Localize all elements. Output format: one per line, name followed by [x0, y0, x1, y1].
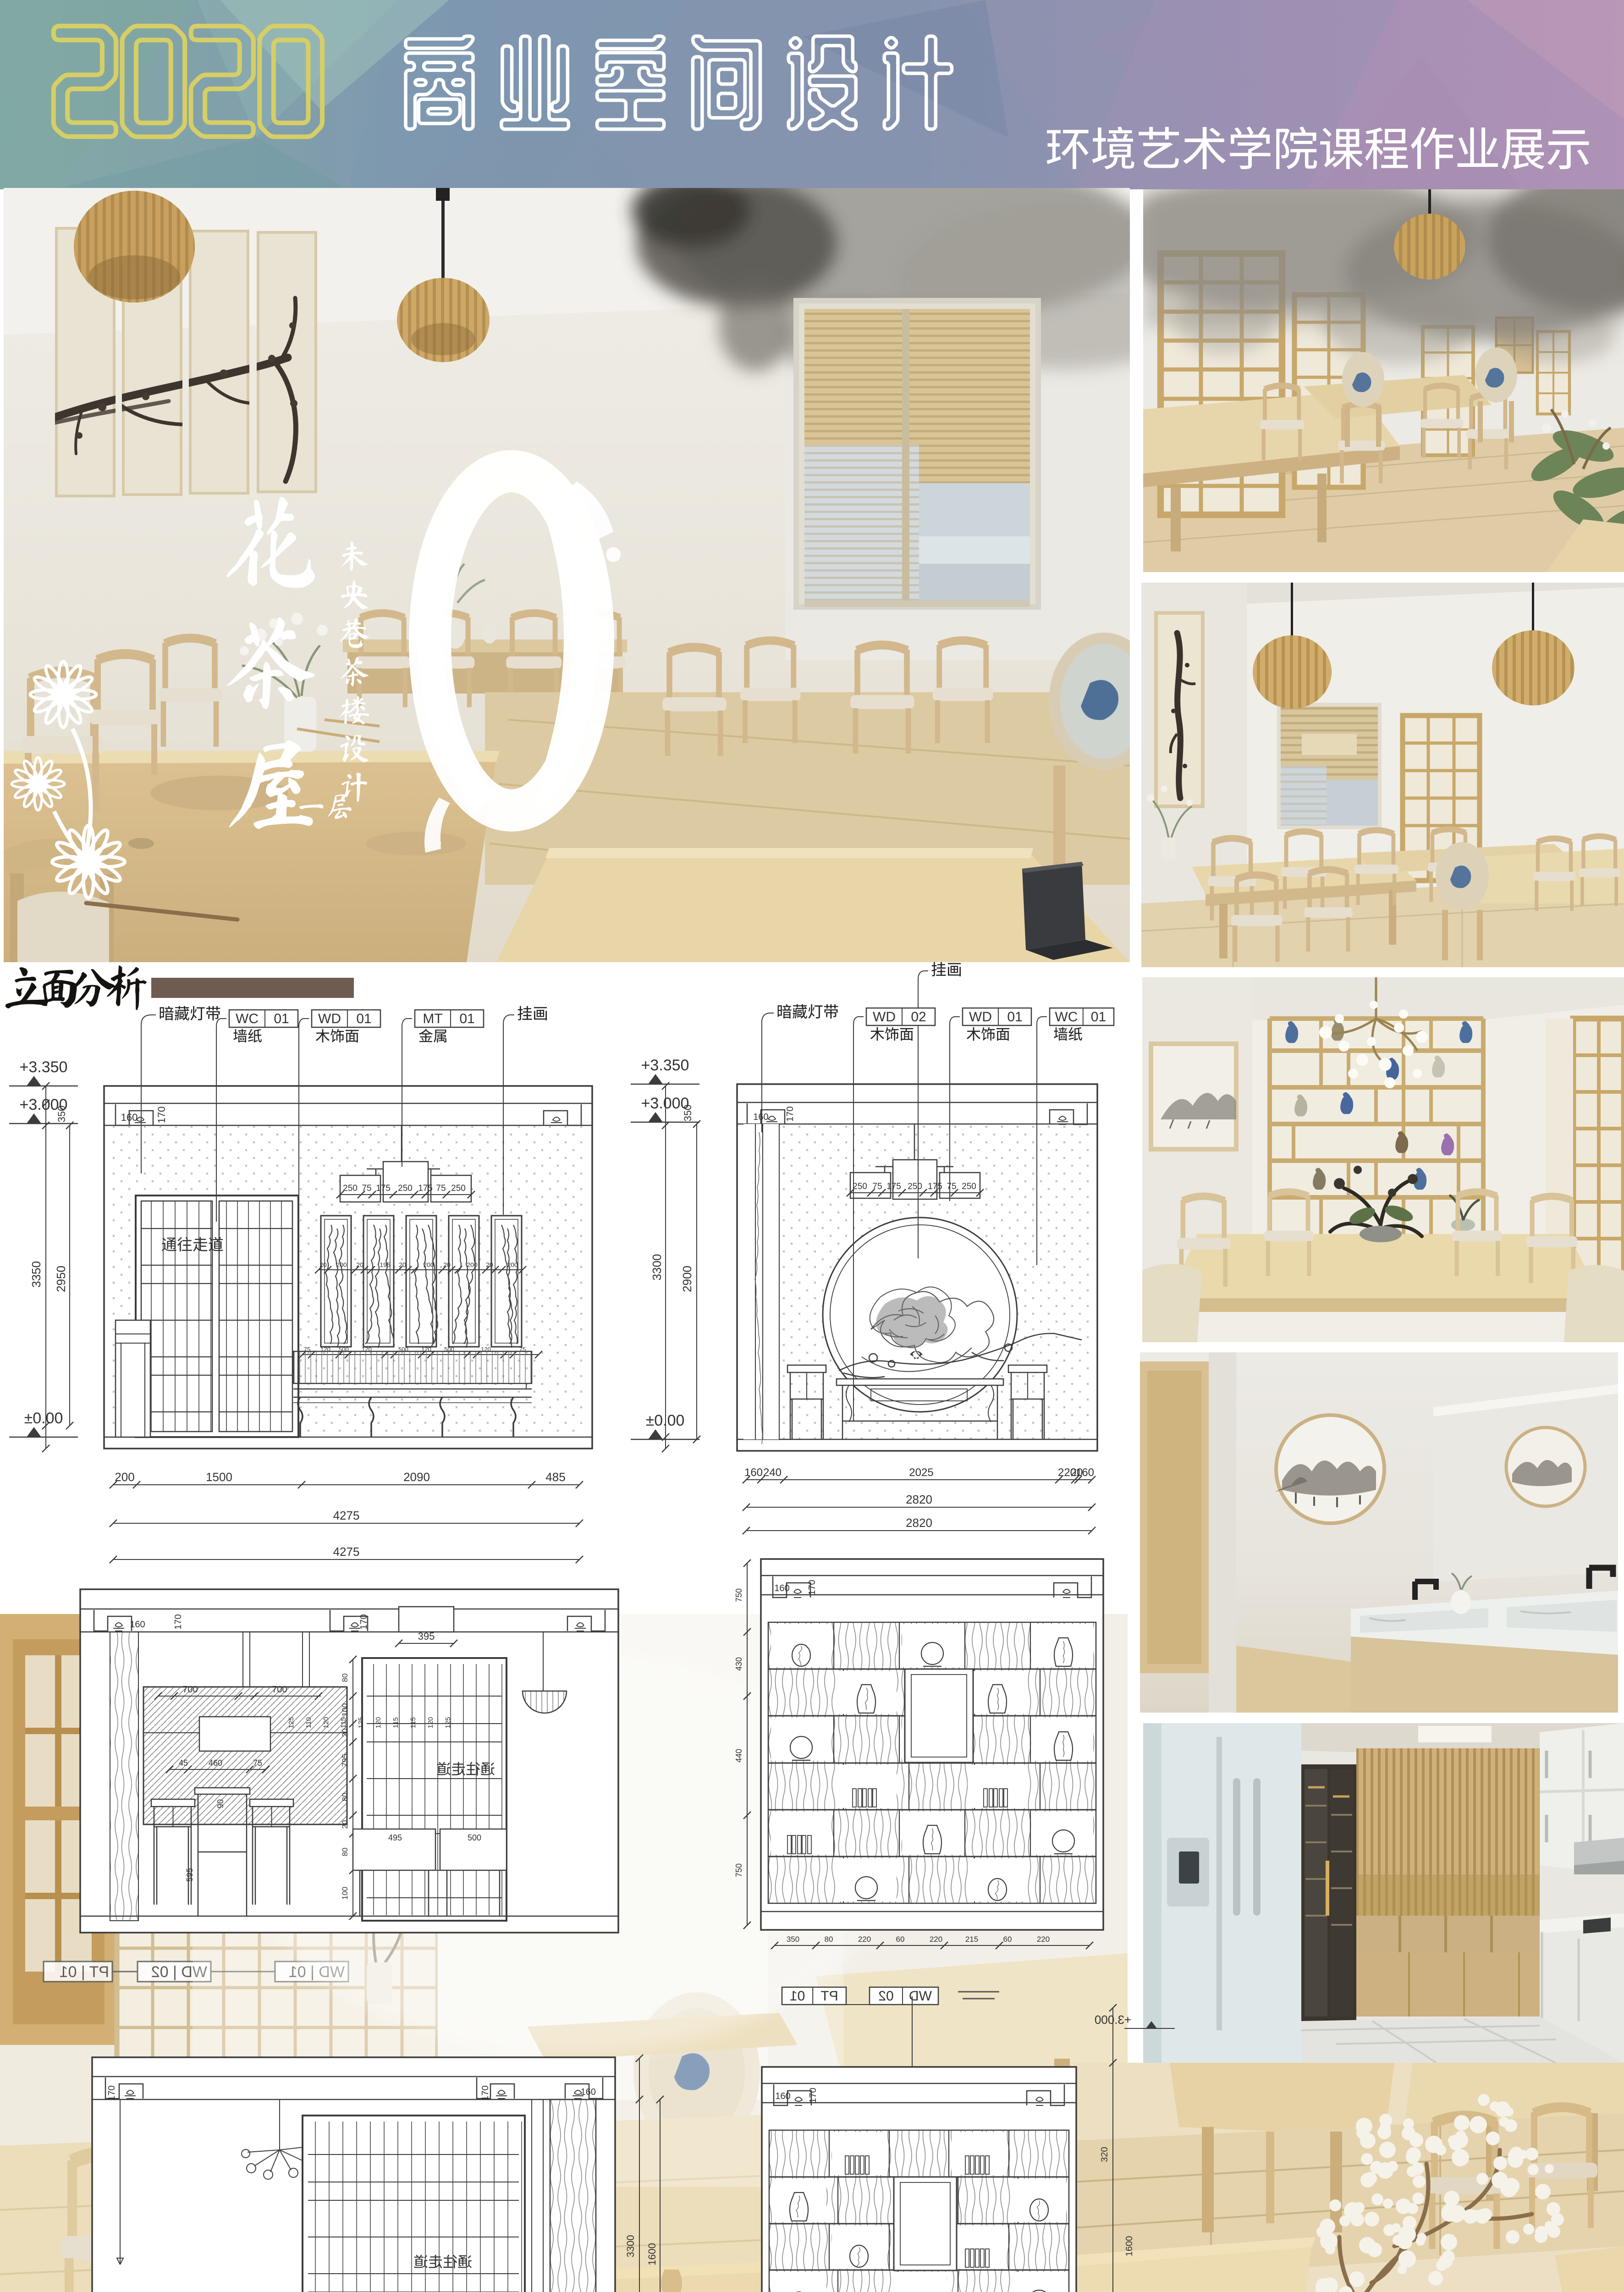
svg-text:2950: 2950	[54, 1266, 68, 1292]
svg-text:+3.350: +3.350	[20, 1058, 68, 1076]
svg-text:100: 100	[341, 1703, 349, 1716]
svg-text:700: 700	[182, 1685, 198, 1695]
svg-text:120: 120	[427, 1717, 435, 1728]
svg-text:160: 160	[753, 1112, 768, 1122]
svg-text:200: 200	[423, 1261, 434, 1268]
svg-text:160: 160	[121, 1112, 138, 1123]
svg-text:PT | 01: PT | 01	[60, 1963, 109, 1981]
svg-text:240: 240	[763, 1466, 782, 1479]
svg-text:125: 125	[357, 1717, 365, 1728]
svg-text:125: 125	[444, 1717, 452, 1728]
svg-text:20: 20	[341, 1729, 349, 1737]
svg-text:160: 160	[774, 1583, 789, 1593]
svg-text:4275: 4275	[333, 1509, 360, 1522]
svg-text:02: 02	[878, 1989, 893, 2004]
svg-text:170: 170	[156, 1107, 167, 1124]
svg-text:+3.000: +3.000	[1095, 2013, 1131, 2027]
svg-text:20: 20	[319, 1261, 327, 1268]
svg-text:60: 60	[1003, 1935, 1012, 1944]
svg-text:160: 160	[581, 2087, 596, 2097]
svg-text:+3.000: +3.000	[20, 1096, 68, 1113]
svg-text:60: 60	[896, 1935, 905, 1944]
svg-text:20: 20	[486, 1261, 493, 1268]
svg-text:175: 175	[376, 1184, 391, 1193]
svg-text:100: 100	[341, 1887, 349, 1900]
svg-text:200: 200	[115, 1470, 134, 1484]
svg-text:1600: 1600	[646, 2243, 658, 2265]
svg-text:700: 700	[272, 1685, 287, 1695]
svg-text:3350: 3350	[29, 1261, 43, 1288]
svg-text:90: 90	[216, 1799, 225, 1808]
svg-text:430: 430	[734, 1657, 743, 1671]
svg-text:80: 80	[341, 1793, 349, 1802]
svg-text:750: 750	[734, 1863, 743, 1877]
svg-text:115: 115	[392, 1717, 400, 1728]
svg-text:120: 120	[374, 1717, 382, 1728]
svg-text:PT: PT	[820, 1989, 838, 2004]
svg-text:±0.00: ±0.00	[646, 1412, 685, 1429]
svg-text:75: 75	[436, 1184, 446, 1193]
svg-text:175: 175	[928, 1182, 942, 1191]
svg-text:+3.000: +3.000	[641, 1095, 689, 1112]
svg-text:1600: 1600	[1124, 2236, 1134, 2257]
svg-text:75: 75	[253, 1758, 262, 1768]
svg-text:110: 110	[305, 1717, 313, 1728]
svg-text:500: 500	[468, 1833, 481, 1842]
svg-text:795: 795	[341, 1754, 349, 1767]
svg-text:195: 195	[380, 1261, 391, 1268]
svg-text:485: 485	[545, 1470, 565, 1484]
svg-text:WD: WD	[318, 1011, 341, 1026]
svg-text:MT: MT	[423, 1011, 442, 1026]
svg-text:250: 250	[343, 1184, 358, 1193]
svg-text:75: 75	[362, 1184, 371, 1193]
svg-text:2820: 2820	[906, 1493, 932, 1506]
svg-text:1500: 1500	[206, 1470, 232, 1484]
svg-text:175: 175	[418, 1184, 433, 1193]
svg-text:220: 220	[930, 1935, 942, 1944]
svg-text:220: 220	[858, 1935, 871, 1944]
svg-text:170: 170	[359, 1614, 369, 1629]
svg-text:160: 160	[130, 1620, 145, 1630]
svg-text:3300: 3300	[650, 1254, 664, 1281]
svg-text:WD: WD	[969, 1009, 992, 1025]
svg-text:170: 170	[173, 1614, 183, 1629]
svg-text:460: 460	[209, 1758, 222, 1768]
svg-text:01: 01	[459, 1011, 474, 1026]
svg-text:215: 215	[965, 1935, 978, 1944]
svg-text:120: 120	[322, 1717, 330, 1728]
svg-text:WC: WC	[236, 1011, 259, 1026]
svg-text:170: 170	[807, 1580, 817, 1595]
svg-text:+3.350: +3.350	[641, 1057, 689, 1074]
svg-text:80: 80	[825, 1935, 833, 1944]
svg-text:2820: 2820	[906, 1516, 932, 1530]
svg-text:160: 160	[775, 2091, 790, 2101]
svg-text:170: 170	[808, 2088, 818, 2103]
svg-text:20: 20	[443, 1261, 451, 1268]
svg-text:125: 125	[287, 1717, 295, 1728]
svg-text:115: 115	[409, 1717, 417, 1728]
svg-text:80: 80	[341, 1674, 349, 1682]
svg-text:170: 170	[480, 2085, 490, 2100]
svg-text:320: 320	[1100, 2147, 1110, 2162]
svg-text:4275: 4275	[333, 1545, 360, 1559]
svg-text:01: 01	[790, 1989, 805, 2004]
svg-text:01: 01	[274, 1011, 289, 1026]
svg-text:250: 250	[962, 1182, 976, 1191]
svg-text:250: 250	[398, 1184, 413, 1193]
svg-text:80: 80	[341, 1848, 349, 1857]
svg-text:170: 170	[785, 1106, 795, 1121]
svg-text:250: 250	[853, 1182, 867, 1191]
svg-text:170: 170	[107, 2085, 117, 2100]
svg-text:175: 175	[886, 1182, 901, 1191]
svg-text:350: 350	[787, 1935, 799, 1944]
svg-text:2025: 2025	[909, 1466, 933, 1479]
svg-text:200: 200	[507, 1261, 518, 1268]
svg-text:75: 75	[947, 1182, 956, 1191]
svg-text:75: 75	[872, 1182, 882, 1191]
svg-text:395: 395	[418, 1631, 435, 1642]
svg-text:200: 200	[336, 1261, 347, 1268]
svg-text:250: 250	[451, 1184, 466, 1193]
svg-text:3300: 3300	[625, 2235, 636, 2258]
svg-text:01: 01	[1007, 1009, 1022, 1025]
svg-text:495: 495	[388, 1833, 402, 1842]
svg-text:750: 750	[734, 1588, 743, 1602]
svg-text:160: 160	[1076, 1466, 1094, 1479]
svg-text:WC: WC	[1055, 1009, 1078, 1025]
svg-text:20: 20	[399, 1261, 406, 1268]
svg-text:01: 01	[1091, 1009, 1106, 1025]
svg-text:01: 01	[356, 1011, 371, 1026]
svg-text:02: 02	[911, 1009, 926, 1025]
svg-text:2900: 2900	[680, 1266, 694, 1292]
svg-text:220: 220	[1037, 1935, 1050, 1944]
svg-text:115: 115	[340, 1717, 347, 1728]
svg-text:200: 200	[467, 1261, 478, 1268]
svg-text:WD: WD	[873, 1009, 896, 1025]
svg-text:±0.00: ±0.00	[24, 1410, 63, 1427]
svg-text:595: 595	[185, 1868, 194, 1882]
svg-text:2090: 2090	[403, 1470, 430, 1484]
svg-text:20: 20	[341, 1820, 349, 1829]
svg-text:440: 440	[734, 1749, 743, 1763]
svg-text:45: 45	[179, 1758, 188, 1768]
svg-text:160: 160	[744, 1466, 763, 1479]
svg-text:250: 250	[908, 1182, 922, 1191]
svg-text:20: 20	[356, 1261, 363, 1268]
